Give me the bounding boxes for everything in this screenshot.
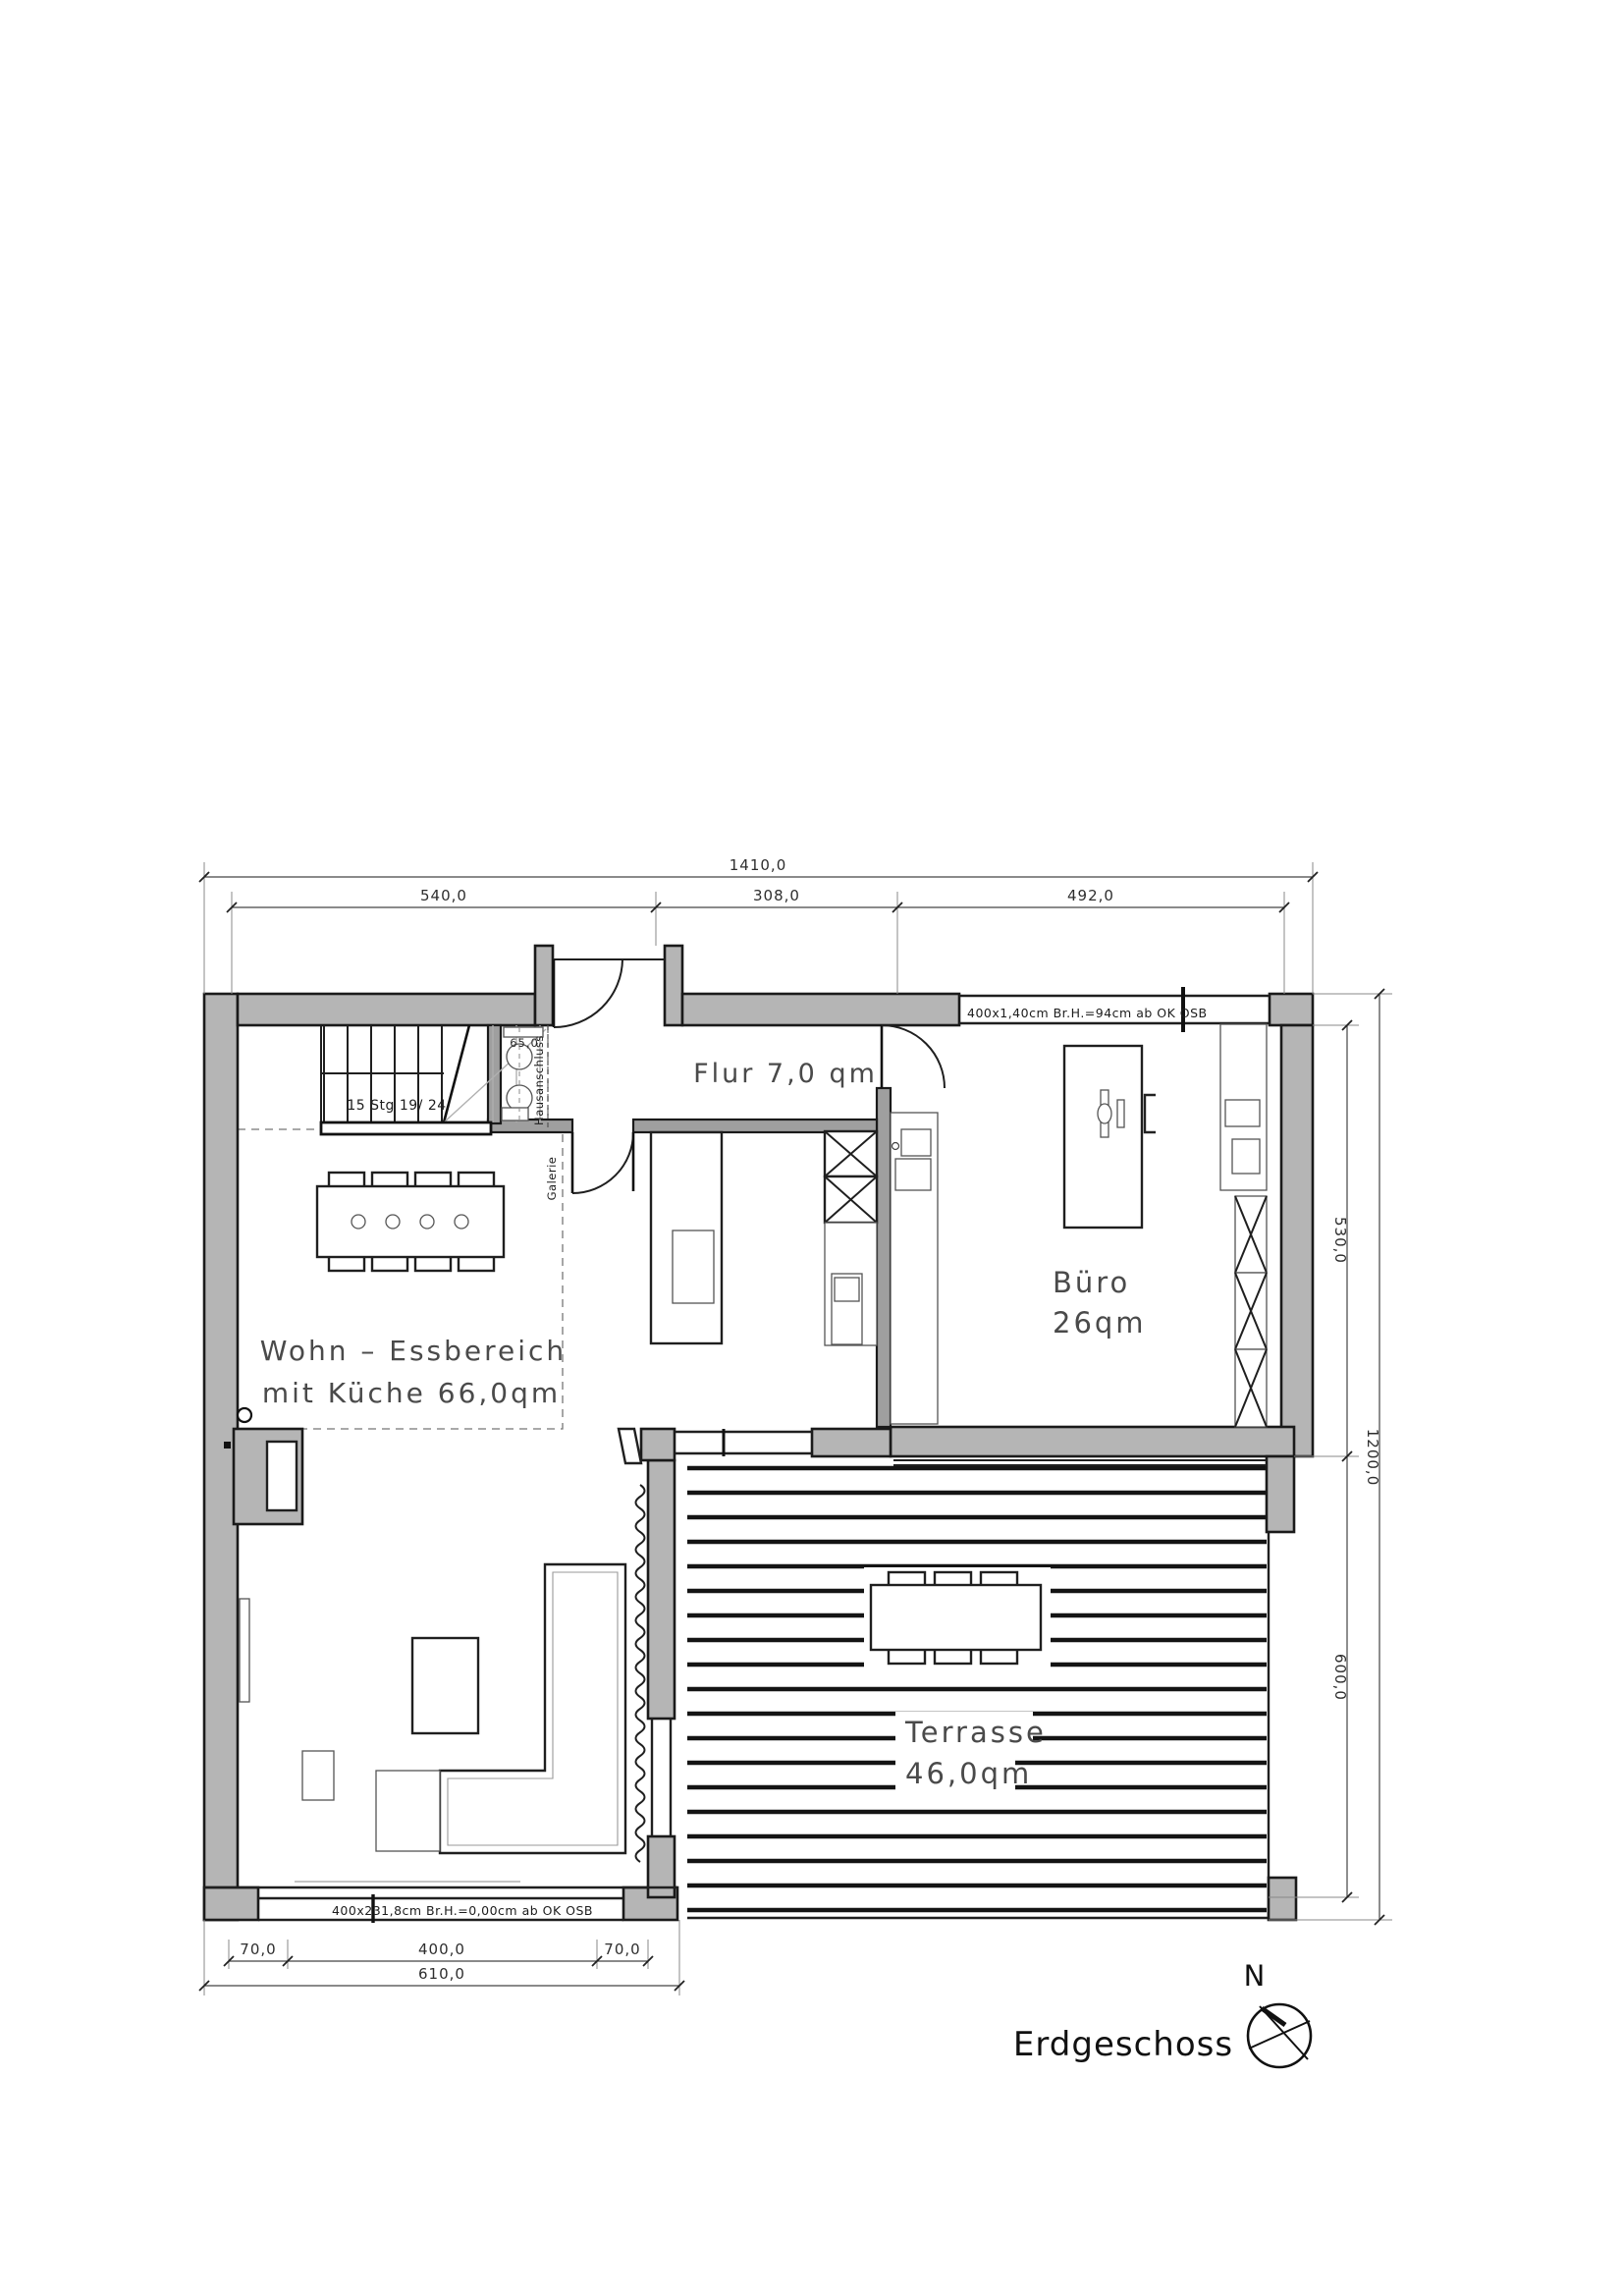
coffee-table <box>412 1638 478 1733</box>
dim-right-seg2: 600,0 <box>1331 1654 1349 1701</box>
wall-connection-dot <box>224 1442 231 1449</box>
north-arrow-icon: N <box>1244 1959 1311 2067</box>
kitchen-furniture <box>633 1113 938 1424</box>
dim-bottom-total: 610,0 <box>418 1965 465 1983</box>
curtain-wavy-line <box>636 1485 645 1862</box>
galerie-label: Galerie <box>545 1157 559 1201</box>
hausanschluss-label: Hausanschluss <box>532 1035 546 1125</box>
living-furniture <box>224 1173 625 1853</box>
window-buero-south <box>893 1460 1267 1465</box>
floor-plan-drawing: 400x1,40cm Br.H.=94cm ab OK OSB 400x231,… <box>0 0 1622 2296</box>
hausanschluss-room: 65,0 Hausanschluss <box>502 1025 548 1131</box>
room-label-terrasse: Terrasse <box>904 1716 1047 1749</box>
dimension-chain-bottom: 70,0 400,0 70,0 610,0 <box>199 1920 684 1995</box>
room-label-wohn-line1: Wohn – Essbereich <box>260 1335 567 1367</box>
terrace-decking <box>687 1460 1269 1918</box>
sofa-chaise <box>376 1771 440 1851</box>
window-bottom: 400x231,8cm Br.H.=0,00cm ab OK OSB <box>204 1882 677 1923</box>
room-area-terrasse: 46,0qm <box>905 1757 1032 1790</box>
room-label-buero: Büro <box>1053 1266 1130 1299</box>
entry-door <box>553 959 665 1027</box>
dining-table <box>317 1186 504 1257</box>
dimension-chain-top: 1410,0 540,0 308,0 492,0 <box>199 856 1318 994</box>
side-table <box>302 1751 334 1800</box>
dim-top-total: 1410,0 <box>730 856 787 874</box>
dim-bottom-seg3: 70,0 <box>604 1941 640 1958</box>
dim-top-seg3: 492,0 <box>1067 887 1114 904</box>
dim-bottom-seg2: 400,0 <box>418 1941 465 1958</box>
room-label-flur: Flur 7,0 qm <box>693 1059 878 1089</box>
floor-plan-page: 400x1,40cm Br.H.=94cm ab OK OSB 400x231,… <box>0 0 1622 2296</box>
dim-top-seg1: 540,0 <box>420 887 467 904</box>
door-flur-buero <box>882 1025 945 1088</box>
buero-furniture <box>1064 1024 1267 1427</box>
radiator-left-wall <box>240 1599 249 1702</box>
page-title: Erdgeschoss <box>1013 2025 1233 2064</box>
window-bottom-annotation: 400x231,8cm Br.H.=0,00cm ab OK OSB <box>332 1903 593 1918</box>
door-flur-living <box>572 1132 633 1193</box>
window-kitchen-south <box>675 1429 812 1456</box>
sliding-door-leaf <box>619 1429 641 1463</box>
dim-right-seg1: 530,0 <box>1331 1217 1349 1264</box>
room-area-buero: 26qm <box>1053 1306 1147 1339</box>
terrace-dining-set <box>871 1572 1041 1664</box>
window-top-annotation: 400x1,40cm Br.H.=94cm ab OK OSB <box>967 1006 1208 1020</box>
dim-right-total: 1200,0 <box>1364 1429 1381 1487</box>
window-east <box>652 1719 671 1836</box>
north-label: N <box>1244 1959 1267 1993</box>
dim-bottom-seg1: 70,0 <box>240 1941 276 1958</box>
dim-top-seg2: 308,0 <box>753 887 800 904</box>
flue-symbol <box>238 1408 251 1422</box>
stairs-label: 15 Stg 19/ 24 <box>347 1098 446 1114</box>
room-label-wohn-line2: mit Küche 66,0qm <box>262 1377 561 1409</box>
